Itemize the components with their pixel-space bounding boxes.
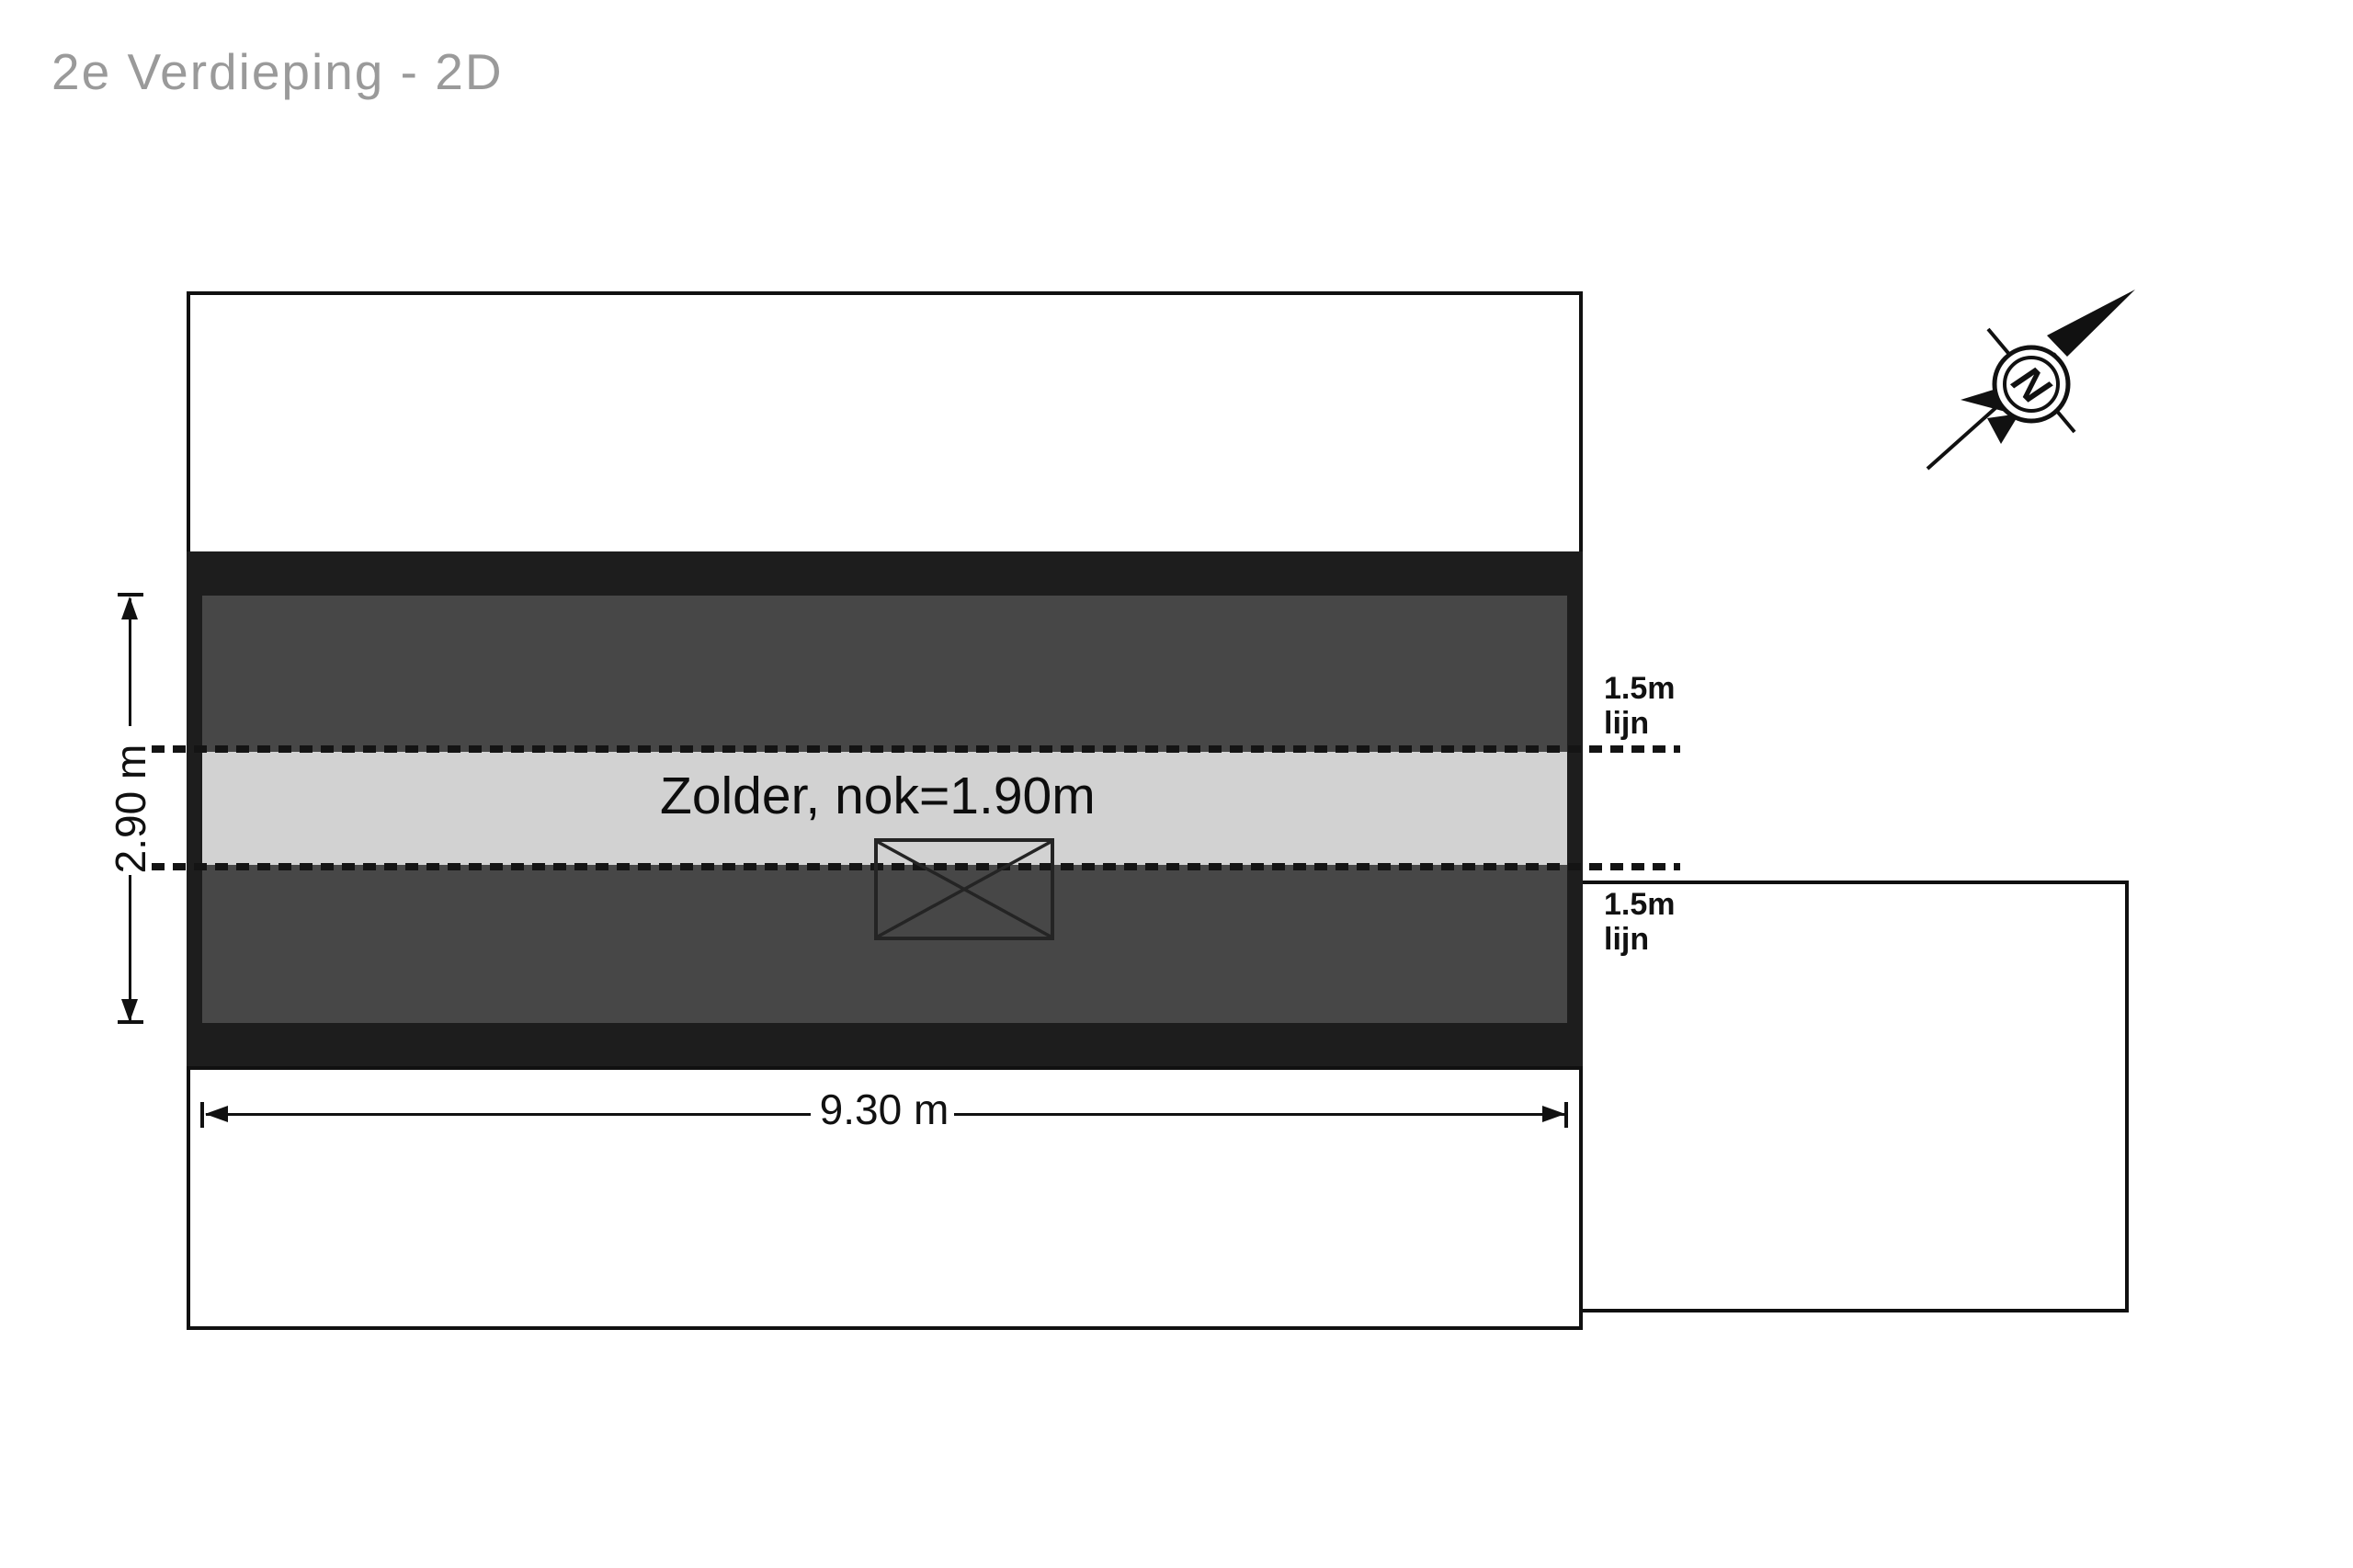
dimension-line [129,598,131,726]
void-crossbox-symbol [874,838,1054,940]
page-title: 2e Verdieping - 2D [51,44,504,100]
crossbox-diagonals [878,842,1051,937]
headroom-dashed-line-top [152,745,1680,753]
dimension-line [206,1113,811,1116]
headroom-label-top: 1.5m lijn [1604,671,1676,741]
dimension-line [129,875,131,1021]
dimension-width-label: 9.30 m [811,1088,958,1131]
floorplan-page: 2e Verdieping - 2D Zolder, nok=1.90m 1.5… [0,0,2353,1568]
dimension-line [954,1113,1566,1116]
dimension-height-label: 2.90 m [109,731,152,887]
room-label: Zolder, nok=1.90m [660,770,1096,823]
dimension-tick [200,1102,204,1128]
north-compass-icon: N [1916,271,2146,483]
roof-outline-top [187,291,1583,555]
headroom-label-bottom: 1.5m lijn [1604,887,1676,957]
